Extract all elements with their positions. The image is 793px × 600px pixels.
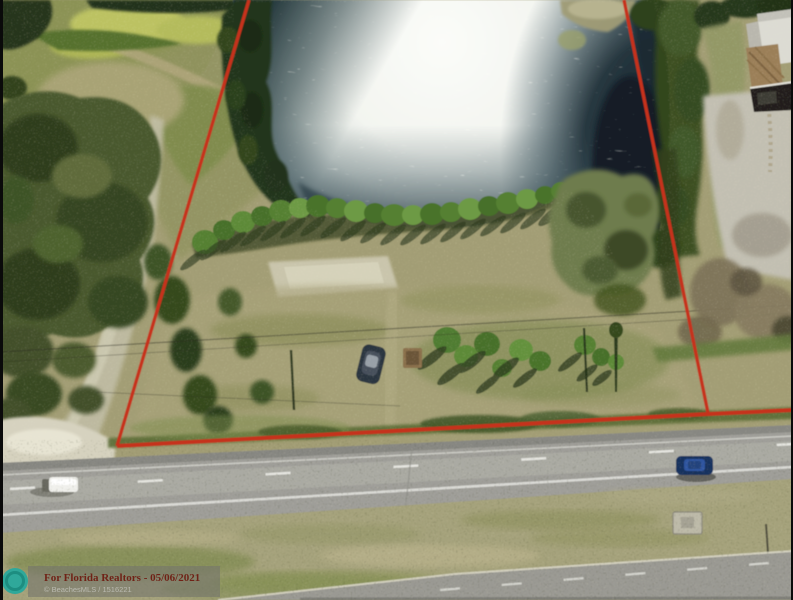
svg-text:For Florida Realtors - 05/06/2: For Florida Realtors - 05/06/2021: [44, 572, 200, 584]
svg-text:© BeachesMLS / 1516221: © BeachesMLS / 1516221: [44, 585, 132, 594]
